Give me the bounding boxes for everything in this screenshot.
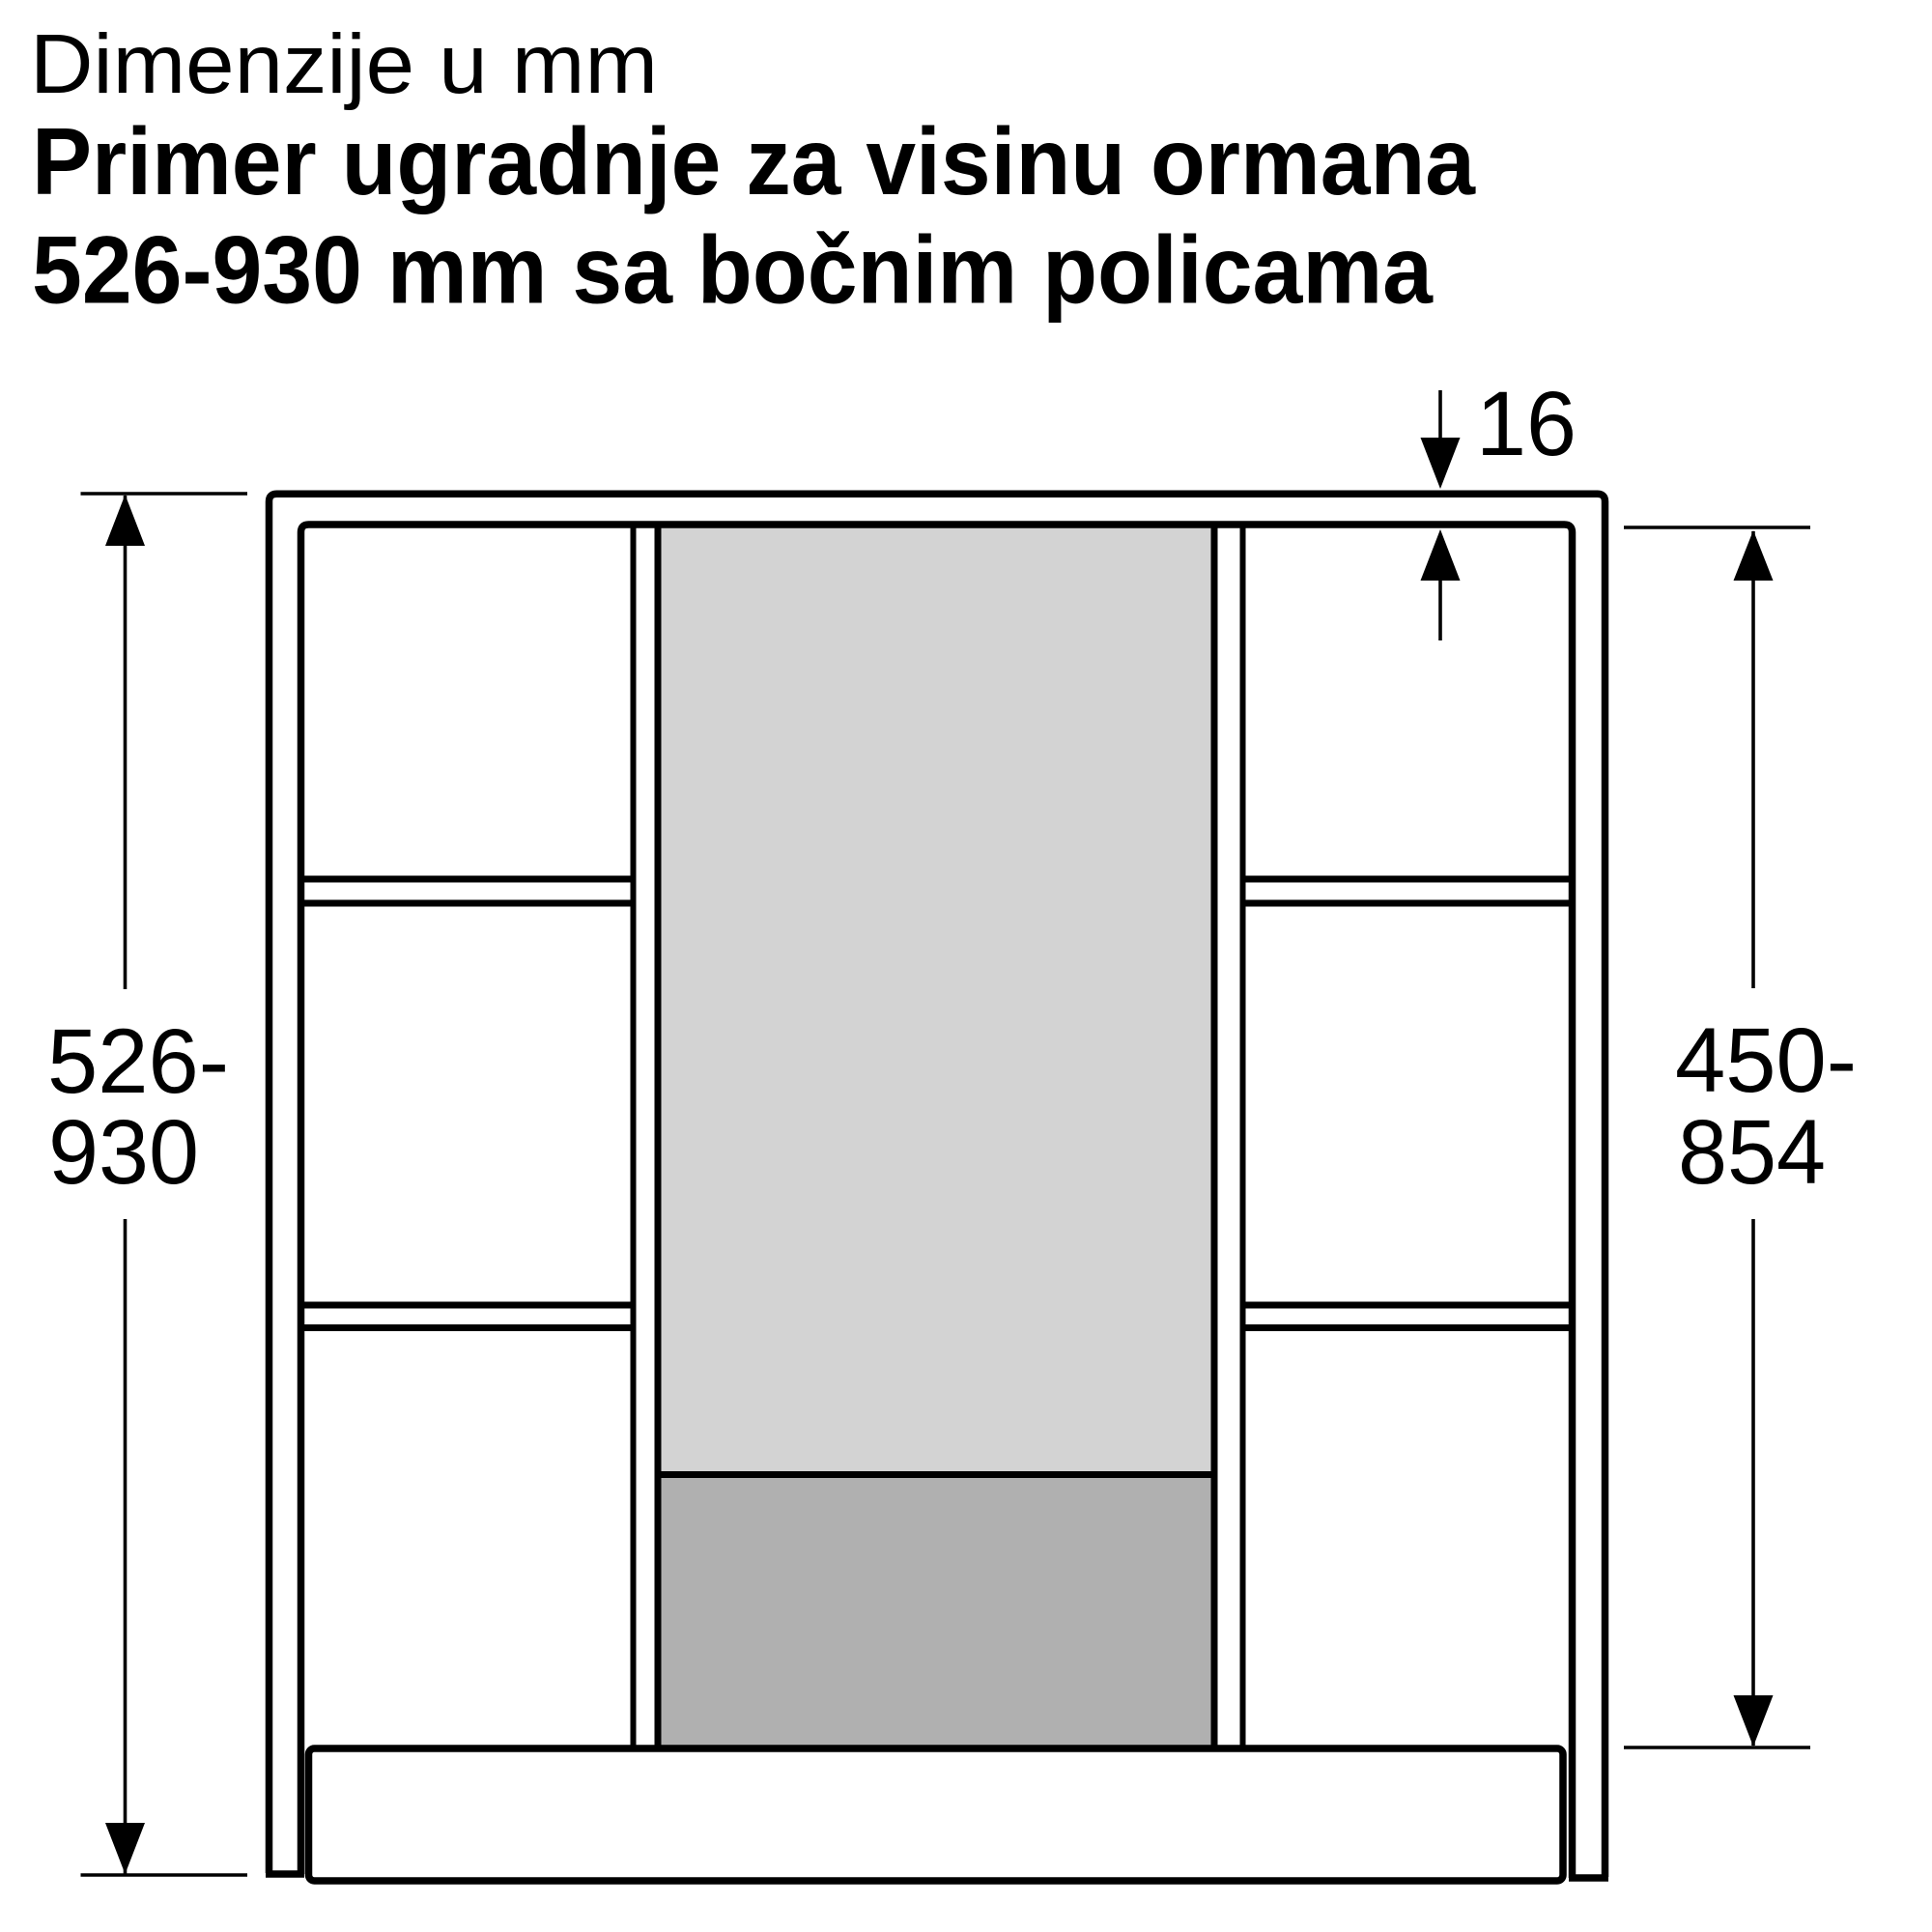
- svg-text:16: 16: [1476, 373, 1577, 475]
- svg-text:526-: 526-: [47, 1010, 229, 1113]
- svg-text:526-930 mm sa bočnim policama: 526-930 mm sa bočnim policama: [32, 216, 1434, 324]
- svg-text:Primer ugradnje za visinu orma: Primer ugradnje za visinu ormana: [32, 108, 1476, 214]
- svg-text:930: 930: [48, 1101, 199, 1204]
- svg-text:Dimenzije u mm: Dimenzije u mm: [30, 16, 658, 111]
- svg-text:854: 854: [1678, 1101, 1826, 1204]
- svg-text:450-: 450-: [1675, 1009, 1857, 1112]
